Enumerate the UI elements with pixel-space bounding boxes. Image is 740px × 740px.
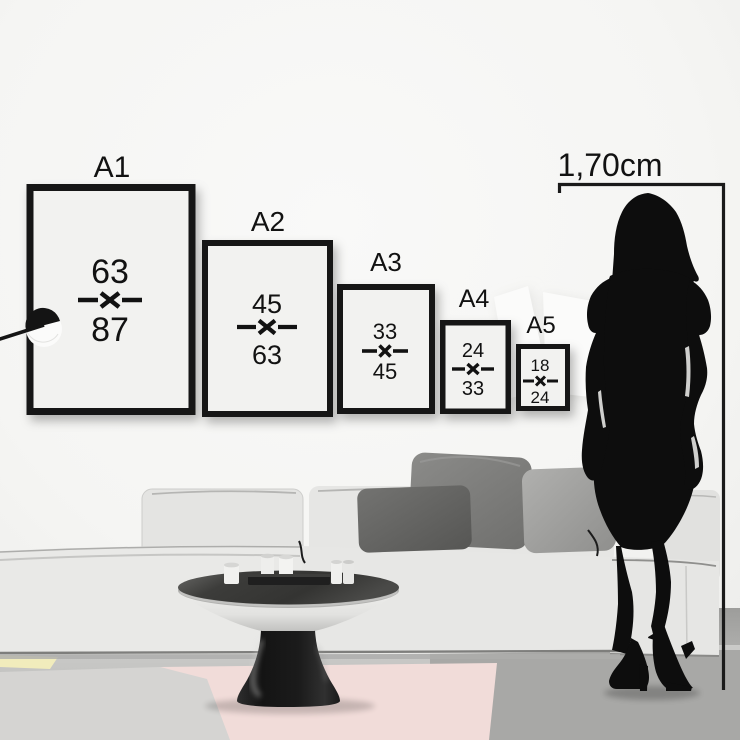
svg-text:24: 24 <box>462 340 484 362</box>
svg-text:A1: A1 <box>94 151 131 184</box>
svg-text:1,70cm: 1,70cm <box>558 147 663 183</box>
svg-text:A2: A2 <box>251 206 285 237</box>
svg-text:A4: A4 <box>459 285 490 313</box>
svg-text:A5: A5 <box>526 312 555 339</box>
svg-text:45: 45 <box>252 289 282 319</box>
svg-text:63: 63 <box>252 340 282 370</box>
svg-text:A3: A3 <box>370 247 402 277</box>
svg-text:18: 18 <box>531 356 550 375</box>
svg-text:45: 45 <box>373 359 397 384</box>
svg-text:87: 87 <box>91 311 129 349</box>
svg-text:63: 63 <box>91 253 129 291</box>
svg-text:33: 33 <box>462 378 484 400</box>
svg-text:33: 33 <box>373 319 397 344</box>
svg-text:24: 24 <box>531 388 550 407</box>
